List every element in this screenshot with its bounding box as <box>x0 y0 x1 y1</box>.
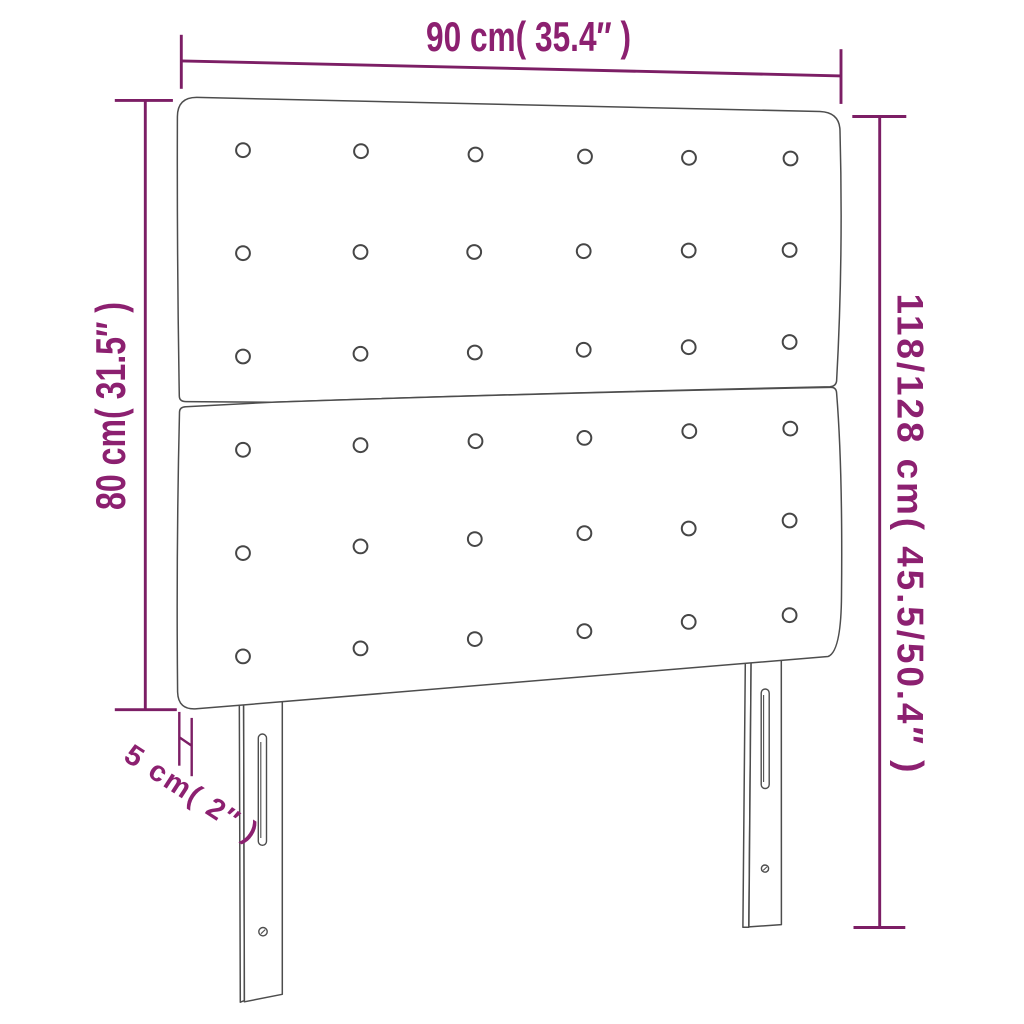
svg-text:80 cm( 31.5″ ): 80 cm( 31.5″ ) <box>87 302 134 510</box>
svg-text:90 cm( 35.4″ ): 90 cm( 35.4″ ) <box>426 13 631 60</box>
